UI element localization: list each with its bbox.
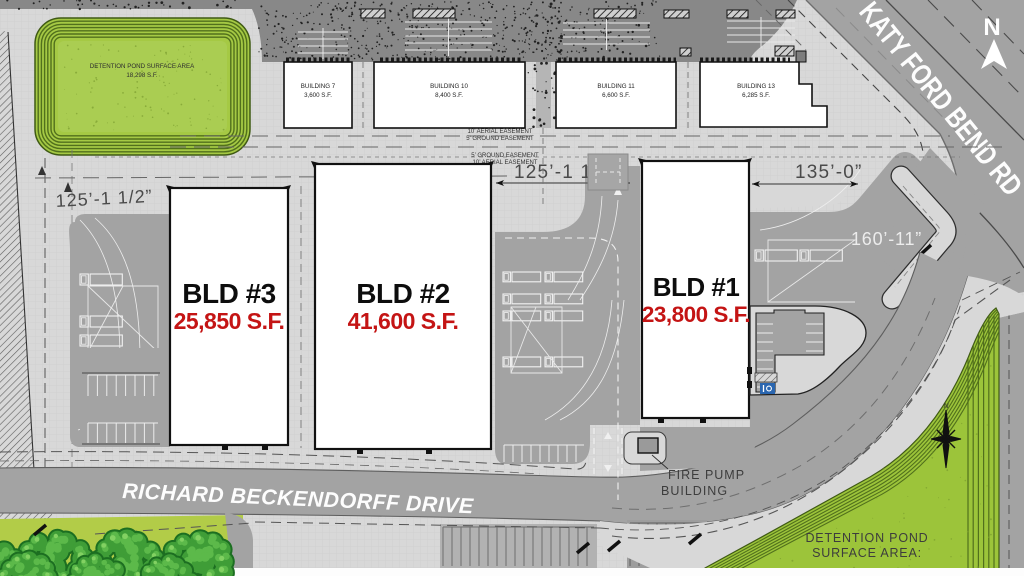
svg-text:BUILDING 13: BUILDING 13 (737, 83, 775, 90)
svg-text:18,298 S.F.: 18,298 S.F. (126, 72, 158, 79)
svg-text:BLD #3: BLD #3 (182, 278, 275, 309)
svg-text:BUILDING: BUILDING (661, 484, 728, 498)
svg-text:DETENTION POND SURFACE AREA: DETENTION POND SURFACE AREA (90, 63, 195, 70)
svg-text:10’ AERIAL EASEMENT: 10’ AERIAL EASEMENT (468, 129, 533, 135)
svg-text:SURFACE AREA:: SURFACE AREA: (812, 546, 922, 560)
svg-text:6,285 S.F.: 6,285 S.F. (742, 92, 770, 99)
svg-text:41,600 S.F.: 41,600 S.F. (348, 308, 459, 334)
svg-text:160’-11”: 160’-11” (851, 229, 922, 249)
svg-text:3,600 S.F.: 3,600 S.F. (304, 92, 332, 99)
svg-text:135’-0”: 135’-0” (795, 162, 863, 183)
svg-text:BLD #2: BLD #2 (356, 278, 449, 309)
svg-text:5’ GROUND EASEMENT: 5’ GROUND EASEMENT (466, 136, 534, 142)
svg-text:6,600 S.F.: 6,600 S.F. (602, 92, 630, 99)
svg-text:BUILDING 10: BUILDING 10 (430, 83, 468, 90)
svg-text:N: N (983, 14, 1000, 41)
svg-text:BUILDING 11: BUILDING 11 (597, 83, 635, 90)
svg-text:23,800 S.F.: 23,800 S.F. (642, 302, 750, 327)
svg-text:25,850 S.F.: 25,850 S.F. (174, 308, 285, 334)
svg-text:BUILDING 7: BUILDING 7 (301, 83, 336, 90)
svg-text:5’ GROUND EASEMENT: 5’ GROUND EASEMENT (471, 153, 539, 159)
svg-text:DETENTION POND: DETENTION POND (805, 531, 928, 545)
svg-text:FIRE PUMP: FIRE PUMP (668, 468, 745, 482)
svg-text:8,400 S.F.: 8,400 S.F. (435, 92, 463, 99)
svg-text:BLD #1: BLD #1 (653, 272, 740, 302)
